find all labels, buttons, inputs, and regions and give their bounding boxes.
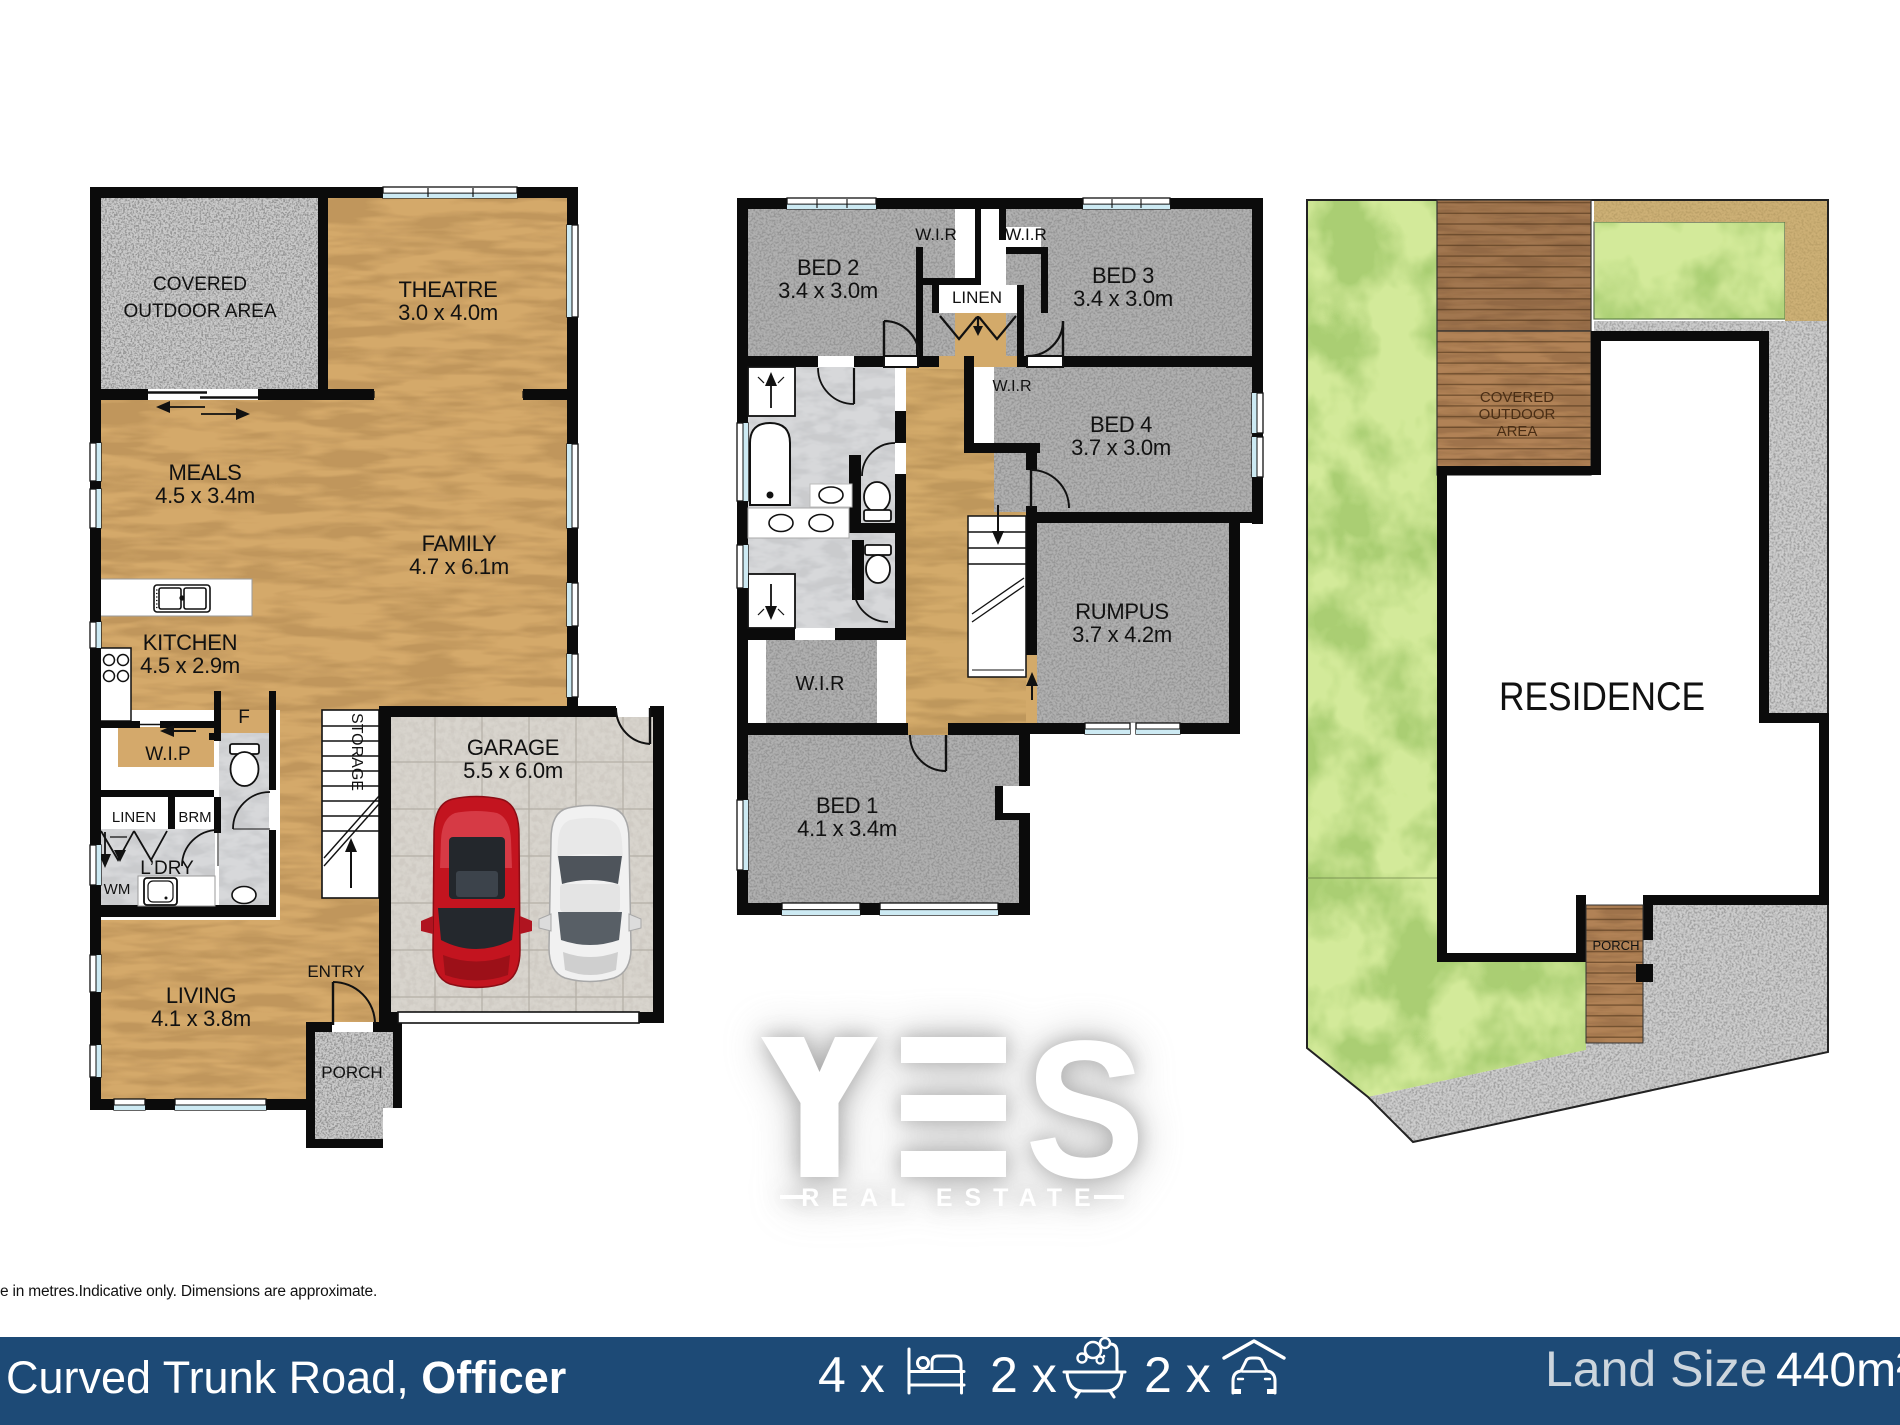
svg-text:BED 3: BED 3 <box>1092 263 1154 288</box>
svg-text:KITCHEN: KITCHEN <box>143 630 237 655</box>
svg-text:4.1 x 3.4m: 4.1 x 3.4m <box>797 816 897 841</box>
svg-text:4.5 x 2.9m: 4.5 x 2.9m <box>140 653 240 678</box>
svg-text:LINEN: LINEN <box>112 809 156 826</box>
svg-text:WM: WM <box>104 881 131 898</box>
svg-text:STORAGE: STORAGE <box>348 713 365 791</box>
svg-text:e in metres.Indicative only. D: e in metres.Indicative only. Dimensions … <box>0 1283 377 1300</box>
svg-text:COVERED: COVERED <box>153 274 247 295</box>
svg-text:3.7 x 3.0m: 3.7 x 3.0m <box>1071 435 1171 460</box>
svg-text:THEATRE: THEATRE <box>399 277 498 302</box>
svg-text:W.I.R: W.I.R <box>796 673 845 695</box>
svg-text:L’DRY: L’DRY <box>140 858 194 879</box>
svg-text:4.7 x 6.1m: 4.7 x 6.1m <box>409 554 509 579</box>
svg-text:BRM: BRM <box>178 809 211 826</box>
svg-text:440m²: 440m² <box>1776 1344 1900 1397</box>
svg-text:W.I.R: W.I.R <box>915 225 957 244</box>
svg-text:BED 2: BED 2 <box>797 255 859 280</box>
svg-text:OUTDOOR: OUTDOOR <box>1479 406 1556 423</box>
svg-text:BED 4: BED 4 <box>1090 412 1152 437</box>
svg-text:MEALS: MEALS <box>168 460 241 485</box>
svg-text:COVERED: COVERED <box>1480 389 1554 406</box>
svg-text:3.4 x 3.0m: 3.4 x 3.0m <box>778 278 878 303</box>
svg-text:RESIDENCE: RESIDENCE <box>1499 675 1705 719</box>
svg-text:4.5 x 3.4m: 4.5 x 3.4m <box>155 483 255 508</box>
svg-text:3.7 x 4.2m: 3.7 x 4.2m <box>1072 622 1172 647</box>
svg-text:PORCH: PORCH <box>321 1063 382 1082</box>
svg-text:ENTRY: ENTRY <box>307 962 364 981</box>
svg-text:OUTDOOR AREA: OUTDOOR AREA <box>123 301 276 322</box>
svg-text:RUMPUS: RUMPUS <box>1075 599 1169 624</box>
svg-text:AREA: AREA <box>1497 423 1538 440</box>
svg-text:FAMILY: FAMILY <box>422 531 497 556</box>
svg-text:4 x: 4 x <box>818 1347 885 1403</box>
svg-text:PORCH: PORCH <box>1593 938 1640 953</box>
svg-text:Land Size: Land Size <box>1545 1341 1767 1397</box>
svg-text:W.I.P: W.I.P <box>145 744 190 765</box>
svg-text:LINEN: LINEN <box>952 288 1002 307</box>
svg-text:W.I.R: W.I.R <box>1005 225 1047 244</box>
svg-text:Curved Trunk Road, Officer: Curved Trunk Road, Officer <box>6 1352 566 1403</box>
svg-text:3.4 x 3.0m: 3.4 x 3.0m <box>1073 286 1173 311</box>
svg-text:F: F <box>238 707 250 728</box>
svg-text:GARAGE: GARAGE <box>467 735 559 760</box>
svg-text:LIVING: LIVING <box>166 983 236 1008</box>
svg-text:3.0 x 4.0m: 3.0 x 4.0m <box>398 300 498 325</box>
svg-text:4.1 x 3.8m: 4.1 x 3.8m <box>151 1006 251 1031</box>
svg-text:BED 1: BED 1 <box>816 793 878 818</box>
svg-text:2 x: 2 x <box>990 1347 1057 1403</box>
svg-text:5.5 x 6.0m: 5.5 x 6.0m <box>463 758 563 783</box>
svg-text:W.I.R: W.I.R <box>992 378 1031 395</box>
svg-text:2 x: 2 x <box>1144 1347 1211 1403</box>
svg-text:REAL ESTATE: REAL ESTATE <box>801 1184 1102 1212</box>
